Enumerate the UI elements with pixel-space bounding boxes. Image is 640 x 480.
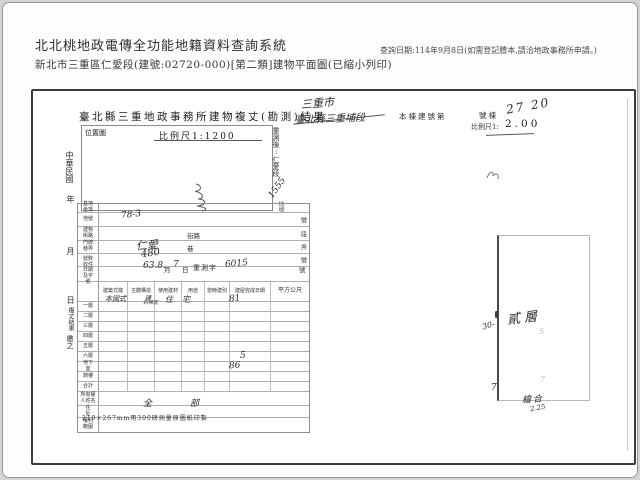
margin-year: 年	[65, 195, 76, 203]
floor-row: 六層	[78, 352, 309, 362]
plan-scale-label: 比例尺1:	[471, 122, 499, 132]
receipt-hand-day: 7	[173, 260, 179, 270]
margin-day: 日	[65, 296, 76, 304]
ink-blob	[495, 311, 498, 318]
table-row: 地號號	[78, 213, 309, 227]
floor-row: 地下室	[78, 362, 309, 372]
receipt-day-label: 日	[182, 264, 189, 274]
building-number-suffix: 號棟	[479, 110, 498, 121]
system-title: 北北桃地政電傳全功能地籍資料查詢系統	[35, 35, 287, 54]
hand-faint-mid: 5	[539, 327, 544, 336]
floor-row: 四層	[78, 332, 309, 342]
hand-area-total: 86	[229, 361, 241, 372]
receipt-no-label: 號	[299, 264, 306, 274]
hand-dim-left: 30-	[481, 319, 496, 331]
hand-area-arcade: 5	[240, 351, 246, 361]
hand-rights-1: 全	[143, 396, 152, 409]
floor-row: 三層	[78, 322, 309, 332]
floor-row: 五層	[78, 342, 309, 352]
query-date-note: 查詢日期:114年9月8日(如需登記謄本,請洽地政事務所申請。)	[380, 45, 597, 56]
resurvey-note: 重測後:仁愛段	[271, 127, 281, 177]
handwritten-building-number: 27 20	[505, 95, 551, 116]
hand-floor1-style: 本國式	[105, 294, 126, 304]
handwritten-parcel-no: 78-3	[121, 209, 142, 221]
hand-floor1-use-2: 宅	[182, 294, 190, 305]
receipt-word: 重測字	[193, 263, 217, 273]
floor-row: 騎樓	[78, 372, 309, 382]
paper-spec-footnote: 210×267mm用300磅測量原圖紙印製	[82, 413, 208, 422]
hand-floor1-material: 石棉瓦	[143, 299, 158, 306]
table-row: 基地坐落	[78, 204, 309, 213]
receipt-month-label: 月	[164, 264, 171, 274]
margin-survey-result: 複丈結果	[66, 307, 75, 331]
building-number-label: 本棟建號第	[399, 111, 447, 122]
plan-scale-value: 2.00	[505, 118, 540, 130]
scanned-document-viewer: 臺北縣三重地政事務所建物複丈(勘測)結果 位置圖 比例尺1:1200 重測後:仁…	[31, 89, 636, 465]
hand-dim-bottom-left: 7	[491, 383, 497, 393]
hand-area-floor1: 81	[229, 293, 241, 304]
location-map-box: 位置圖 比例尺1:1200	[81, 125, 273, 211]
document-subtitle: 新北市三重區仁愛段(建號:02720-000)[第二類]建物平面圖(已縮小列印)	[35, 57, 392, 72]
location-map-label: 位置圖	[85, 128, 106, 138]
hand-rights-2: 部	[190, 396, 199, 409]
floor-row: 合計	[78, 382, 309, 392]
hand-faint-low: 7	[540, 375, 545, 384]
receipt-hand-number: 6015	[225, 258, 249, 270]
corner-scribble	[485, 169, 501, 181]
table-row: 建物街路街路段	[78, 227, 309, 241]
scan-page-edge	[627, 99, 628, 451]
hand-plan-bottom-value: 2.25	[529, 403, 546, 414]
survey-document-title: 臺北縣三重地政事務所建物複丈(勘測)結果	[79, 109, 326, 124]
app-window: 北北桃地政電傳全功能地籍資料查詢系統 新北市三重區仁愛段(建號:02720-00…	[2, 2, 638, 478]
floor-row: 二層	[78, 312, 309, 322]
table-row: 門牌巷弄巷弄	[78, 241, 309, 254]
margin-month: 月	[65, 247, 76, 255]
hand-floor1-use-1: 住	[165, 294, 173, 305]
receipt-hand-date: 63.8.	[143, 261, 166, 271]
margin-submit: 繳之	[65, 335, 75, 349]
margin-era: 中華民國	[64, 151, 75, 183]
